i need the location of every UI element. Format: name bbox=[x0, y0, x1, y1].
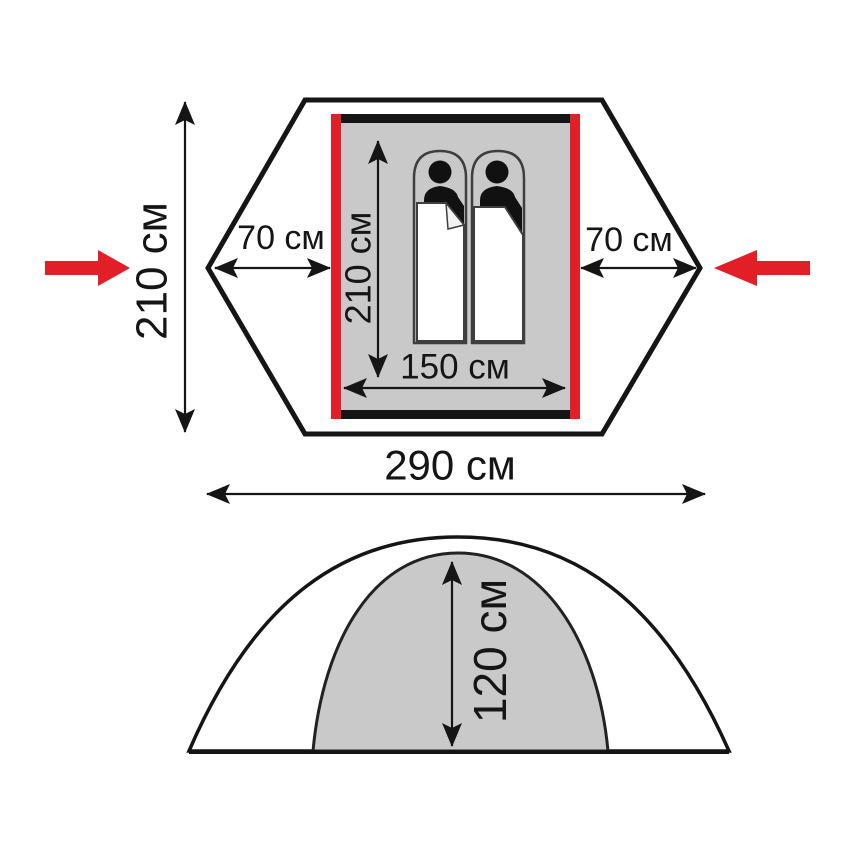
total-width-label: 290 см bbox=[384, 442, 516, 489]
inner-tent-bottom-bar bbox=[339, 410, 572, 419]
diagram-canvas: 210 см 70 см 70 см 210 см 150 см 290 см bbox=[0, 0, 850, 850]
tent-top-view: 210 см 70 см 70 см 210 см 150 см 290 см bbox=[45, 100, 810, 494]
inner-length-label: 210 см bbox=[338, 212, 379, 325]
outer-depth-label: 210 см bbox=[128, 202, 177, 340]
inner-width-label: 150 см bbox=[400, 348, 510, 387]
occupant-head-icon bbox=[429, 161, 452, 184]
dimension-total-width: 290 см bbox=[207, 442, 705, 495]
sleeping-bag-icon bbox=[414, 151, 466, 343]
sleeping-bag-icon bbox=[472, 151, 524, 343]
dimension-outer-depth: 210 см bbox=[128, 102, 186, 432]
inner-tent-right-red-bar bbox=[570, 114, 580, 419]
entrance-arrow-right-icon bbox=[714, 250, 810, 286]
tent-side-view: 120 см bbox=[189, 537, 729, 752]
right-vestibule-label: 70 см bbox=[585, 221, 673, 259]
left-vestibule-label: 70 см bbox=[237, 219, 325, 257]
sleeping-bag-cover bbox=[474, 207, 523, 341]
occupant-head-icon bbox=[486, 161, 509, 184]
inner-tent-top-bar bbox=[339, 114, 572, 123]
height-label: 120 см bbox=[464, 579, 516, 723]
entrance-arrow-left-icon bbox=[45, 250, 130, 286]
tent-dimension-diagram: 210 см 70 см 70 см 210 см 150 см 290 см bbox=[0, 0, 850, 850]
